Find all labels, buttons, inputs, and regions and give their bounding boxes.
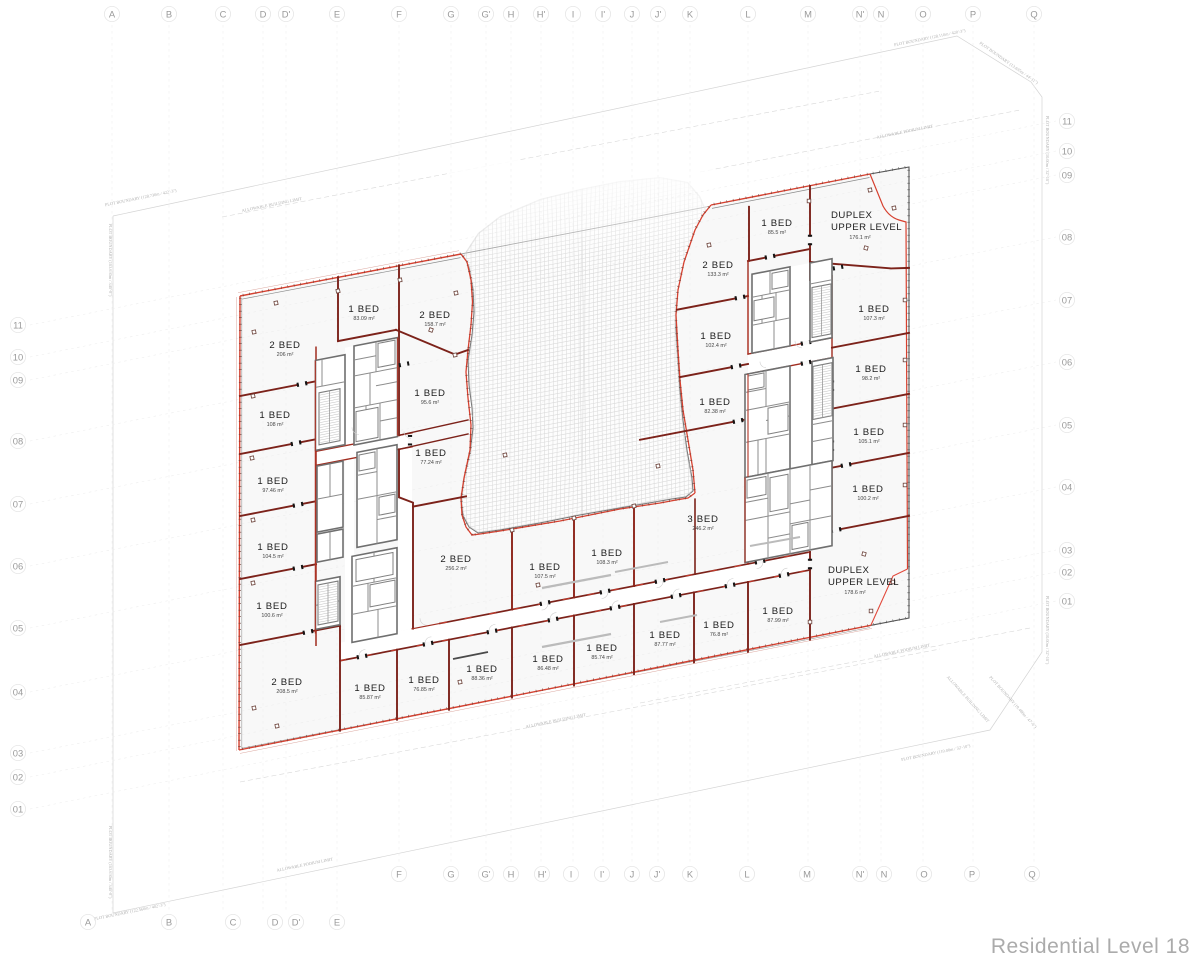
svg-text:178.6 m²: 178.6 m² bbox=[844, 590, 865, 596]
svg-text:N': N' bbox=[856, 868, 865, 879]
svg-text:1 BED: 1 BED bbox=[532, 654, 563, 665]
svg-text:M: M bbox=[804, 8, 812, 19]
svg-text:N: N bbox=[878, 8, 885, 19]
svg-text:02: 02 bbox=[1062, 566, 1072, 577]
svg-text:04: 04 bbox=[1062, 481, 1072, 492]
svg-text:D: D bbox=[272, 916, 279, 927]
svg-text:UPPER LEVEL: UPPER LEVEL bbox=[828, 577, 899, 588]
svg-text:77.24 m²: 77.24 m² bbox=[420, 460, 441, 466]
svg-text:08: 08 bbox=[13, 435, 23, 446]
svg-text:83.09 m²: 83.09 m² bbox=[353, 316, 374, 322]
svg-text:2 BED: 2 BED bbox=[419, 310, 450, 321]
svg-text:01: 01 bbox=[13, 803, 23, 814]
svg-text:104.5 m²: 104.5 m² bbox=[262, 554, 283, 560]
svg-text:95.6 m²: 95.6 m² bbox=[421, 400, 439, 406]
svg-text:I': I' bbox=[600, 868, 605, 879]
svg-text:P: P bbox=[970, 8, 976, 19]
svg-text:76.85 m²: 76.85 m² bbox=[413, 687, 434, 693]
svg-text:06: 06 bbox=[13, 560, 23, 571]
svg-text:H: H bbox=[508, 868, 515, 879]
svg-text:B: B bbox=[166, 916, 172, 927]
svg-text:H': H' bbox=[538, 868, 547, 879]
svg-text:B: B bbox=[166, 8, 172, 19]
svg-text:1 BED: 1 BED bbox=[853, 427, 884, 438]
svg-text:11: 11 bbox=[13, 319, 23, 330]
svg-text:1 BED: 1 BED bbox=[354, 683, 385, 694]
svg-text:03: 03 bbox=[13, 747, 23, 758]
svg-text:H': H' bbox=[537, 8, 546, 19]
svg-text:05: 05 bbox=[13, 622, 23, 633]
svg-text:E: E bbox=[334, 916, 340, 927]
svg-text:1 BED: 1 BED bbox=[414, 388, 445, 399]
svg-text:Q: Q bbox=[1030, 8, 1037, 19]
svg-text:C: C bbox=[220, 8, 227, 19]
svg-text:UPPER LEVEL: UPPER LEVEL bbox=[831, 222, 902, 233]
svg-text:I: I bbox=[572, 8, 575, 19]
svg-text:G: G bbox=[447, 868, 454, 879]
svg-text:A: A bbox=[85, 916, 92, 927]
svg-text:102.4 m²: 102.4 m² bbox=[705, 343, 726, 349]
svg-text:ALLOWABLE PODIUM LIMIT: ALLOWABLE PODIUM LIMIT bbox=[276, 856, 333, 872]
svg-text:09: 09 bbox=[1062, 169, 1072, 180]
svg-text:256.2 m²: 256.2 m² bbox=[445, 566, 466, 572]
svg-text:DUPLEX: DUPLEX bbox=[828, 565, 869, 576]
svg-text:PLOT BOUNDARY (13.695m / 44'-1: PLOT BOUNDARY (13.695m / 44'-11") bbox=[979, 40, 1040, 85]
svg-text:100.2 m²: 100.2 m² bbox=[857, 496, 878, 502]
svg-text:PLOT BOUNDARY (110.00m / 32'-1: PLOT BOUNDARY (110.00m / 32'-10") bbox=[901, 743, 972, 762]
svg-text:76.8 m²: 76.8 m² bbox=[710, 632, 728, 638]
svg-text:1 BED: 1 BED bbox=[415, 448, 446, 459]
svg-text:D': D' bbox=[282, 8, 291, 19]
svg-text:P: P bbox=[969, 868, 975, 879]
svg-text:2 BED: 2 BED bbox=[271, 677, 302, 688]
svg-text:D': D' bbox=[292, 916, 301, 927]
svg-text:1 BED: 1 BED bbox=[699, 397, 730, 408]
svg-text:1 BED: 1 BED bbox=[591, 548, 622, 559]
svg-text:N': N' bbox=[856, 8, 865, 19]
svg-text:J: J bbox=[630, 868, 635, 879]
svg-text:1 BED: 1 BED bbox=[348, 304, 379, 315]
svg-text:107.3 m²: 107.3 m² bbox=[863, 316, 884, 322]
svg-text:A: A bbox=[109, 8, 116, 19]
svg-text:09: 09 bbox=[13, 374, 23, 385]
svg-text:10: 10 bbox=[1062, 145, 1072, 156]
svg-text:G': G' bbox=[481, 8, 490, 19]
svg-text:1 BED: 1 BED bbox=[703, 620, 734, 631]
svg-text:88.36 m²: 88.36 m² bbox=[471, 676, 492, 682]
svg-text:05: 05 bbox=[1062, 419, 1072, 430]
svg-text:O: O bbox=[919, 8, 926, 19]
svg-text:G': G' bbox=[481, 868, 490, 879]
svg-text:L: L bbox=[744, 868, 749, 879]
svg-text:C: C bbox=[230, 916, 237, 927]
svg-text:Residential Level 18: Residential Level 18 bbox=[991, 935, 1190, 958]
svg-text:133.3 m²: 133.3 m² bbox=[707, 272, 728, 278]
svg-text:Q: Q bbox=[1028, 868, 1035, 879]
svg-text:03: 03 bbox=[1062, 544, 1072, 555]
svg-text:87.77 m²: 87.77 m² bbox=[654, 642, 675, 648]
svg-text:J': J' bbox=[654, 868, 661, 879]
svg-text:F: F bbox=[396, 8, 402, 19]
svg-text:2 BED: 2 BED bbox=[702, 260, 733, 271]
svg-text:1 BED: 1 BED bbox=[761, 218, 792, 229]
svg-text:176.1 m²: 176.1 m² bbox=[849, 235, 870, 241]
svg-text:1 BED: 1 BED bbox=[649, 630, 680, 641]
svg-text:85.87 m²: 85.87 m² bbox=[359, 695, 380, 701]
svg-text:97.46 m²: 97.46 m² bbox=[262, 488, 283, 494]
svg-text:ALLOWABLE PODIUM LIMIT: ALLOWABLE PODIUM LIMIT bbox=[876, 123, 933, 139]
svg-text:2 BED: 2 BED bbox=[440, 554, 471, 565]
svg-text:98.2 m²: 98.2 m² bbox=[862, 376, 880, 382]
svg-text:ALLOWABLE BUILDING LIMIT: ALLOWABLE BUILDING LIMIT bbox=[946, 675, 991, 724]
svg-text:K: K bbox=[687, 8, 694, 19]
svg-text:3 BED: 3 BED bbox=[687, 514, 718, 525]
svg-text:1 BED: 1 BED bbox=[256, 601, 287, 612]
svg-text:1 BED: 1 BED bbox=[700, 331, 731, 342]
svg-text:I: I bbox=[570, 868, 573, 879]
svg-text:G: G bbox=[447, 8, 454, 19]
svg-text:ALLOWABLE BUILDING LIMIT: ALLOWABLE BUILDING LIMIT bbox=[241, 196, 302, 213]
svg-text:O: O bbox=[920, 868, 927, 879]
svg-text:85.5 m²: 85.5 m² bbox=[768, 230, 786, 236]
svg-text:86.48 m²: 86.48 m² bbox=[537, 666, 558, 672]
svg-text:H: H bbox=[508, 8, 515, 19]
svg-text:82.38 m²: 82.38 m² bbox=[704, 409, 725, 415]
svg-text:208.5 m²: 208.5 m² bbox=[276, 689, 297, 695]
svg-text:N: N bbox=[881, 868, 888, 879]
svg-text:10: 10 bbox=[13, 351, 23, 362]
svg-text:ALLOWABLE BUILDING LIMIT: ALLOWABLE BUILDING LIMIT bbox=[525, 712, 586, 729]
svg-text:1 BED: 1 BED bbox=[257, 476, 288, 487]
svg-text:J: J bbox=[630, 8, 635, 19]
svg-text:07: 07 bbox=[13, 498, 23, 509]
svg-text:M: M bbox=[803, 868, 811, 879]
svg-text:04: 04 bbox=[13, 686, 23, 697]
svg-text:1 BED: 1 BED bbox=[855, 364, 886, 375]
svg-text:1 BED: 1 BED bbox=[529, 562, 560, 573]
svg-text:108 m²: 108 m² bbox=[267, 422, 284, 428]
svg-text:K: K bbox=[687, 868, 694, 879]
svg-text:1 BED: 1 BED bbox=[259, 410, 290, 421]
svg-text:1 BED: 1 BED bbox=[852, 484, 883, 495]
svg-text:100.6 m²: 100.6 m² bbox=[261, 613, 282, 619]
svg-text:PLOT BOUNDARY (10.00m / 32'-10: PLOT BOUNDARY (10.00m / 32'-10") bbox=[1045, 116, 1050, 185]
svg-text:206 m²: 206 m² bbox=[277, 352, 294, 358]
svg-text:85.74 m²: 85.74 m² bbox=[591, 655, 612, 661]
svg-text:08: 08 bbox=[1062, 231, 1072, 242]
svg-text:1 BED: 1 BED bbox=[762, 606, 793, 617]
svg-text:1 BED: 1 BED bbox=[586, 643, 617, 654]
svg-text:1 BED: 1 BED bbox=[466, 664, 497, 675]
svg-text:E: E bbox=[334, 8, 340, 19]
svg-text:L: L bbox=[745, 8, 750, 19]
svg-text:I': I' bbox=[601, 8, 606, 19]
svg-text:1 BED: 1 BED bbox=[858, 304, 889, 315]
svg-text:07: 07 bbox=[1062, 294, 1072, 305]
svg-text:158.7 m²: 158.7 m² bbox=[424, 322, 445, 328]
svg-text:PLOT BOUNDARY (10.00m / 32'-10: PLOT BOUNDARY (10.00m / 32'-10") bbox=[1045, 596, 1050, 665]
svg-text:PLOT BOUNDARY (128.110m / 420': PLOT BOUNDARY (128.110m / 420'-3") bbox=[894, 28, 967, 48]
svg-text:87.99 m²: 87.99 m² bbox=[767, 618, 788, 624]
svg-text:2 BED: 2 BED bbox=[269, 340, 300, 351]
svg-text:F: F bbox=[396, 868, 402, 879]
svg-text:DUPLEX: DUPLEX bbox=[831, 210, 872, 221]
svg-text:105.1 m²: 105.1 m² bbox=[858, 439, 879, 445]
svg-text:107.5 m²: 107.5 m² bbox=[534, 574, 555, 580]
svg-text:01: 01 bbox=[1062, 595, 1072, 606]
svg-text:D: D bbox=[260, 8, 267, 19]
svg-text:02: 02 bbox=[13, 771, 23, 782]
svg-text:108.3 m²: 108.3 m² bbox=[596, 560, 617, 566]
svg-text:246.2 m²: 246.2 m² bbox=[692, 526, 713, 532]
svg-text:1 BED: 1 BED bbox=[257, 542, 288, 553]
svg-text:11: 11 bbox=[1062, 115, 1072, 126]
svg-text:1 BED: 1 BED bbox=[408, 675, 439, 686]
svg-text:06: 06 bbox=[1062, 356, 1072, 367]
svg-text:PLOT BOUNDARY (122.560m / 402': PLOT BOUNDARY (122.560m / 402'-3") bbox=[94, 902, 167, 922]
svg-text:J': J' bbox=[655, 8, 662, 19]
